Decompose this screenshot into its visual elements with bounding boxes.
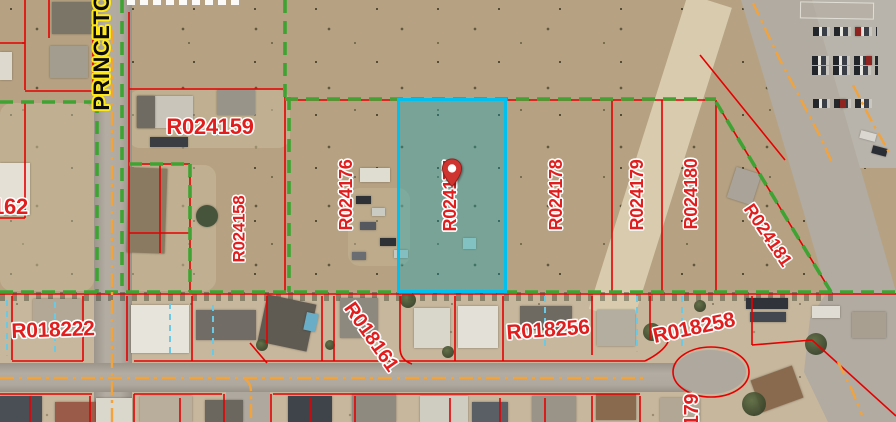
parcel-label-cutoff-179: 179 <box>682 394 702 422</box>
parcel-label-cutoff-162: 162 <box>0 196 28 218</box>
gis-map-viewport[interactable]: PRINCETO R024159 R024158 R024176 R024177… <box>0 0 896 422</box>
parcel-label-r024179: R024179 <box>628 160 646 231</box>
parcel-label-r018256: R018256 <box>506 317 590 344</box>
parcel-label-r024178: R024178 <box>547 160 565 231</box>
parcel-label-r024176: R024176 <box>337 160 355 231</box>
parcel-label-r024180: R024180 <box>682 159 700 230</box>
cutoff-label-fragment <box>127 0 243 5</box>
parcel-label-r024159: R024159 <box>166 116 253 138</box>
parcel-label-r018222: R018222 <box>11 318 95 342</box>
location-pin-icon[interactable] <box>441 158 463 188</box>
parcel-label-r024158: R024158 <box>231 196 248 263</box>
street-name-label: PRINCETO <box>91 0 113 111</box>
